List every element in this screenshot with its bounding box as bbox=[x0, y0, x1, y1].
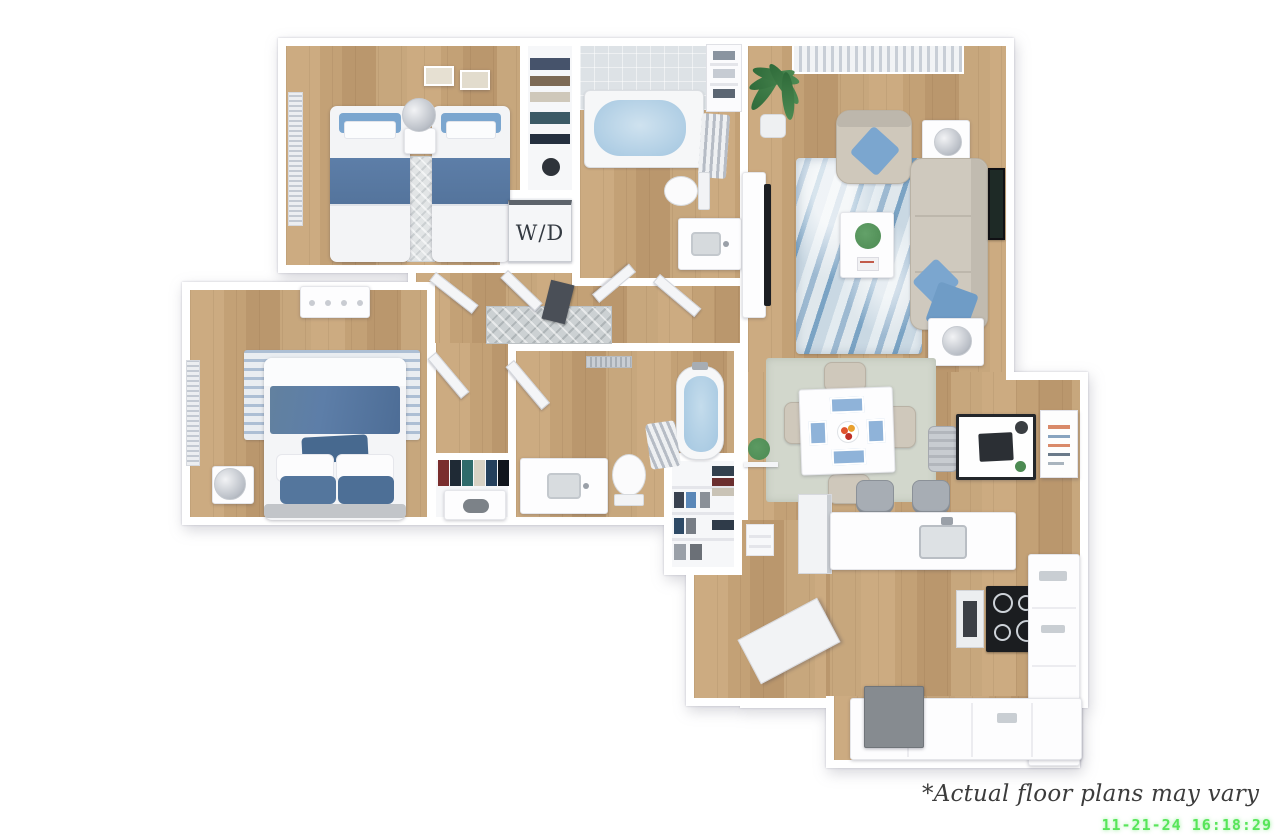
small-appliance bbox=[997, 713, 1017, 723]
towel-stack bbox=[713, 51, 735, 60]
bathroom-vanity bbox=[520, 458, 608, 514]
towel-stack bbox=[713, 89, 735, 98]
washer-dryer-label: W/D bbox=[516, 221, 565, 245]
bedroom-rug bbox=[407, 156, 435, 262]
toilet bbox=[612, 454, 646, 496]
faucet bbox=[583, 483, 589, 489]
laptop bbox=[978, 432, 1013, 462]
shoe-pair bbox=[690, 544, 702, 560]
placemat bbox=[809, 421, 828, 446]
bathtub bbox=[676, 366, 724, 460]
floor-plan-page: W/D bbox=[0, 0, 1280, 840]
wall-art bbox=[460, 70, 490, 90]
microwave bbox=[956, 590, 984, 648]
floor-plan: W/D bbox=[0, 0, 1280, 840]
wall-shelf bbox=[746, 524, 774, 556]
small-appliance bbox=[1039, 571, 1067, 581]
desk bbox=[956, 414, 1036, 480]
window-blinds-icon bbox=[288, 92, 303, 226]
duvet-fold bbox=[432, 204, 510, 206]
potted-plant bbox=[748, 438, 770, 460]
plant-pot bbox=[760, 114, 786, 138]
clothes-stack bbox=[530, 112, 570, 124]
placemat bbox=[832, 448, 867, 465]
table-lamp-icon bbox=[402, 98, 436, 132]
clothes-stack bbox=[530, 134, 570, 144]
clothes-stack bbox=[712, 488, 734, 496]
timestamp: 11-21-24 16:18:29 bbox=[1101, 816, 1272, 834]
armchair bbox=[836, 110, 912, 184]
faucet bbox=[723, 241, 729, 247]
pillow bbox=[280, 476, 336, 504]
accent-pillow bbox=[850, 126, 901, 177]
shoe-pair bbox=[700, 492, 710, 508]
magazine bbox=[857, 257, 879, 271]
clothes-stack bbox=[530, 76, 570, 86]
clothes-stack bbox=[712, 478, 734, 486]
wall-art bbox=[424, 66, 454, 86]
bathtub bbox=[584, 90, 704, 168]
twin-bed-1 bbox=[330, 106, 410, 262]
leaning-art-board bbox=[1040, 410, 1078, 478]
armchair-back bbox=[837, 111, 911, 127]
living-window-blinds-icon bbox=[792, 44, 964, 74]
duvet-fold bbox=[264, 358, 406, 386]
ceiling-vent-icon bbox=[586, 356, 632, 368]
tv-screen-icon bbox=[764, 184, 771, 306]
placemat bbox=[867, 419, 886, 444]
closet-dresser bbox=[444, 490, 506, 520]
headboard bbox=[264, 504, 406, 518]
shoe-pair bbox=[674, 492, 684, 508]
shower-curtain bbox=[698, 113, 730, 179]
clothes-stack bbox=[712, 520, 734, 530]
window-blinds-icon bbox=[186, 360, 200, 466]
refrigerator bbox=[798, 494, 832, 574]
kitchen-island bbox=[830, 512, 1016, 570]
faucet bbox=[941, 517, 953, 525]
toilet bbox=[664, 176, 698, 206]
clothes-stack bbox=[712, 466, 734, 476]
dishwasher bbox=[864, 686, 924, 748]
faucet bbox=[692, 362, 708, 370]
clothes-rail bbox=[438, 460, 510, 486]
dresser bbox=[300, 286, 370, 318]
bathtub-basin bbox=[684, 376, 718, 452]
blanket bbox=[432, 158, 510, 204]
toilet-tank bbox=[698, 172, 710, 210]
framed-art bbox=[988, 168, 1005, 240]
blanket bbox=[270, 386, 400, 434]
table-lamp-icon bbox=[214, 468, 246, 500]
dining-table bbox=[799, 386, 896, 475]
clothes-stack bbox=[530, 58, 570, 70]
twin-bed-2 bbox=[432, 106, 510, 262]
desk-chair bbox=[928, 426, 958, 472]
palm-plant bbox=[736, 56, 808, 142]
potted-plant bbox=[855, 223, 881, 249]
bar-stool bbox=[912, 480, 950, 512]
island-sink bbox=[919, 525, 967, 559]
burner-icon bbox=[993, 593, 1013, 613]
bathroom-vanity bbox=[678, 218, 742, 270]
placemat bbox=[830, 396, 865, 413]
blanket bbox=[330, 158, 410, 204]
washer-dryer-unit: W/D bbox=[508, 200, 572, 262]
wall-shelf bbox=[744, 462, 778, 467]
fruit-bowl bbox=[837, 421, 860, 444]
table-lamp-icon bbox=[934, 128, 962, 156]
duvet-fold bbox=[330, 204, 410, 206]
desk-plant bbox=[1015, 461, 1026, 472]
towel-stack bbox=[713, 69, 735, 78]
clothes-stack bbox=[530, 92, 570, 102]
sink bbox=[691, 232, 721, 256]
pillow bbox=[338, 476, 394, 504]
bathtub-basin bbox=[594, 100, 686, 156]
shower-curtain bbox=[645, 420, 681, 470]
sink bbox=[547, 473, 581, 499]
tv-console bbox=[742, 172, 766, 318]
coffee-table bbox=[840, 212, 894, 278]
pillow bbox=[344, 121, 396, 139]
pillow bbox=[446, 121, 496, 139]
sofa bbox=[910, 158, 988, 330]
shoe-pair bbox=[674, 544, 686, 560]
shoe-pair bbox=[686, 518, 696, 534]
shoe-pair bbox=[686, 492, 696, 508]
table-lamp-icon bbox=[942, 326, 972, 356]
bar-stool bbox=[856, 480, 894, 512]
toilet-tank bbox=[614, 494, 644, 506]
disclaimer-text: *Actual floor plans may vary bbox=[922, 781, 1259, 807]
accessory bbox=[463, 499, 489, 513]
master-bed bbox=[264, 358, 406, 520]
burner-icon bbox=[994, 624, 1011, 641]
small-appliance bbox=[1041, 625, 1065, 633]
shoe-pair bbox=[674, 518, 684, 534]
storage-basket bbox=[542, 158, 560, 176]
wall-segment bbox=[1006, 372, 1088, 380]
desk-speaker bbox=[1015, 421, 1028, 434]
